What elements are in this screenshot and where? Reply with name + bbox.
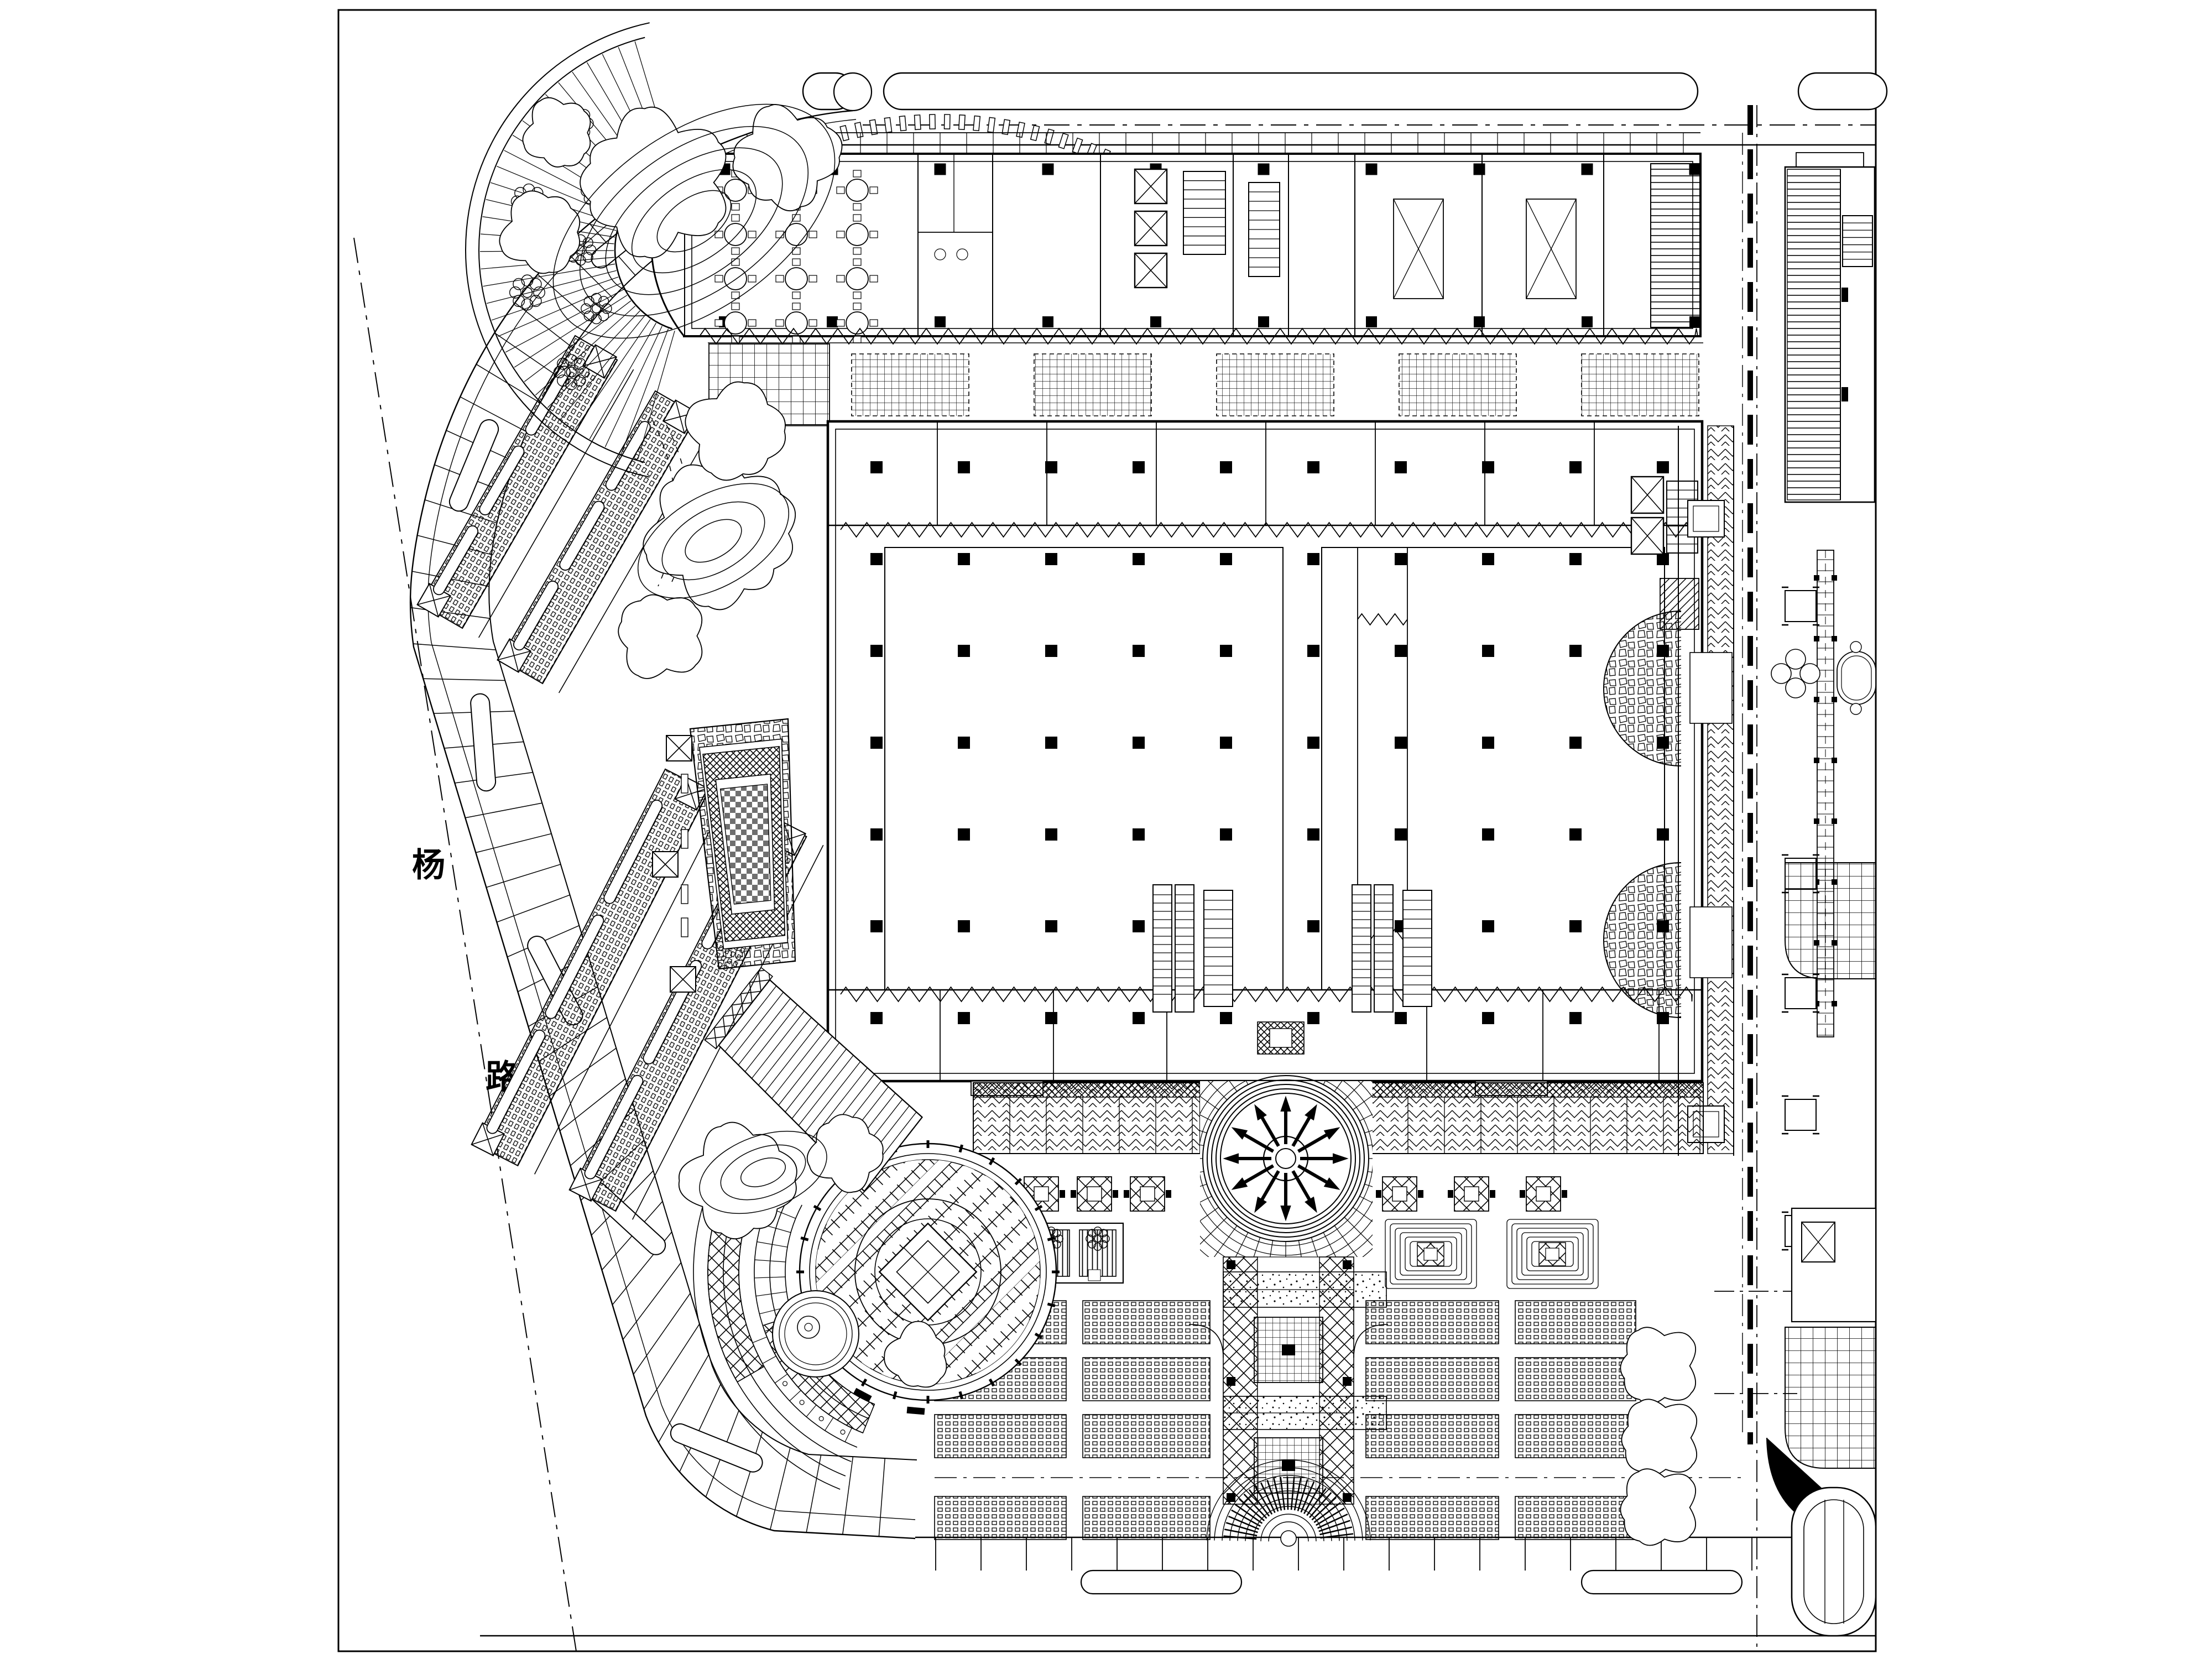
road-label-yang: 杨 [412, 846, 445, 885]
east-garden-strip [1771, 153, 1876, 1636]
main-mall-block [729, 421, 1702, 1095]
cad-site-plan: TZ素材网 TZSUCAI.COM 杨 路 [0, 0, 2212, 1659]
